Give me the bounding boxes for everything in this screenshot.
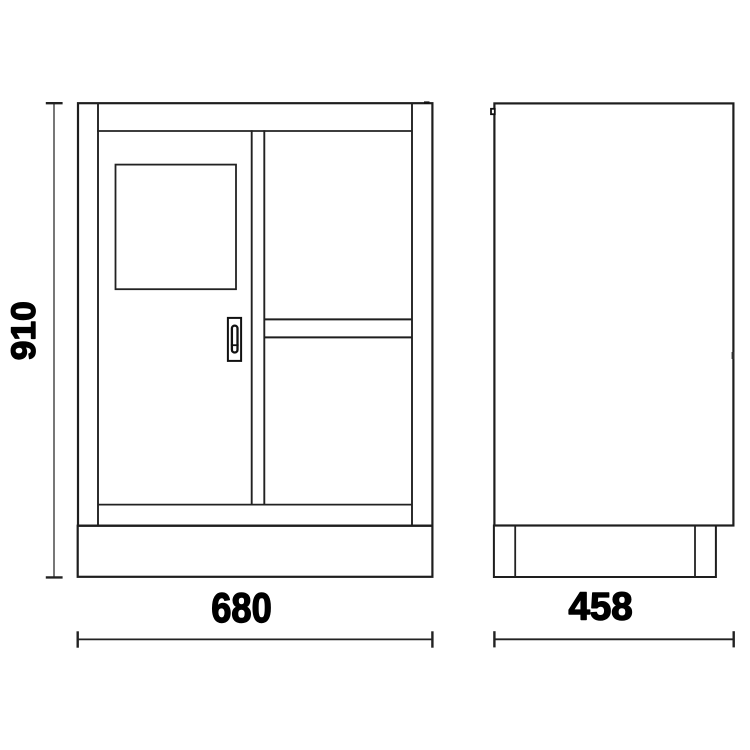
svg-text:910: 910 (5, 301, 44, 360)
svg-text:680: 680 (211, 586, 272, 632)
svg-text:458: 458 (568, 585, 632, 628)
